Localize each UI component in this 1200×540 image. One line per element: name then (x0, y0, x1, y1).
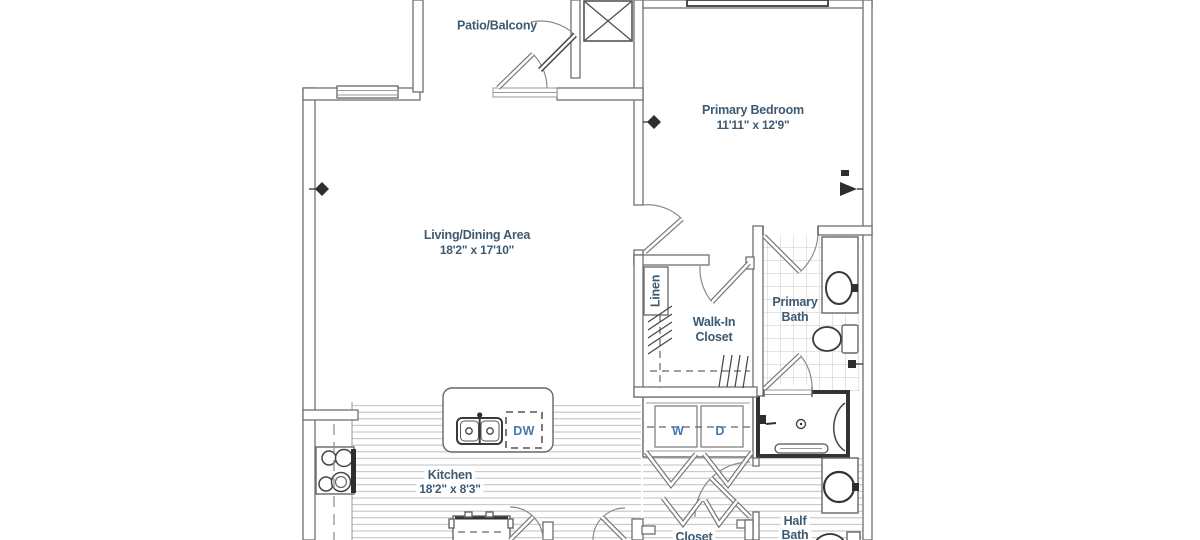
window-bedroom (687, 0, 828, 6)
room-name-line1: Walk-In (693, 315, 736, 330)
tv-outlet-icon (840, 170, 863, 196)
walk-in-closet-label: Walk-In Closet (693, 315, 736, 345)
room-dimensions: 18'2" x 17'10" (424, 243, 530, 258)
thermostat-icon-bedroom (643, 115, 661, 129)
room-name: Primary Bedroom (702, 103, 804, 118)
room-name-line2: Bath (772, 310, 817, 325)
stove-icon (316, 447, 356, 494)
outlet-icon (848, 360, 863, 368)
room-name: Kitchen (425, 468, 475, 482)
kitchen-island (443, 388, 553, 452)
washer-dryer-unit (643, 397, 753, 457)
room-name-line1: Primary (772, 295, 817, 310)
room-name-line2: Bath (779, 528, 812, 540)
room-dimensions: 11'11" x 12'9" (702, 118, 804, 133)
refrigerator-icon (449, 512, 513, 540)
primary-bedroom-label: Primary Bedroom 11'11" x 12'9" (702, 103, 804, 133)
living-dining-label: Living/Dining Area 18'2" x 17'10" (424, 228, 530, 258)
patio-balcony-label: Patio/Balcony (457, 19, 537, 34)
room-name: Closet (672, 530, 715, 540)
closet-label: Closet (672, 530, 715, 540)
room-name-line1: Half (781, 514, 810, 528)
shaft-x-icon (584, 1, 632, 41)
window-living (337, 86, 398, 98)
washer-label: W (672, 424, 684, 438)
bath-vanity-sink-icon (822, 237, 858, 313)
kitchen-sink-icon (457, 412, 502, 444)
walkin-closet-door (700, 263, 749, 302)
floorplan-page: Patio/Balcony Primary Bedroom 11'11" x 1… (0, 0, 1200, 540)
shower-icon (758, 385, 848, 456)
toilet-icon (813, 325, 858, 353)
room-name: Living/Dining Area (424, 228, 530, 243)
floorplan-drawing (0, 0, 1200, 540)
kitchen-label: Kitchen 18'2" x 8'3" (416, 468, 483, 496)
room-dimensions: 18'2" x 8'3" (416, 482, 483, 496)
dryer-label: D (715, 424, 724, 438)
dishwasher-label: DW (513, 424, 534, 438)
room-name-line2: Closet (693, 330, 736, 345)
linen-closet-label: Linen (649, 275, 664, 307)
primary-bath-label: Primary Bath (772, 295, 817, 325)
half-bath-label: Half Bath (779, 514, 812, 540)
halfbath-sink-icon (822, 458, 859, 513)
bedroom-door (643, 205, 682, 252)
